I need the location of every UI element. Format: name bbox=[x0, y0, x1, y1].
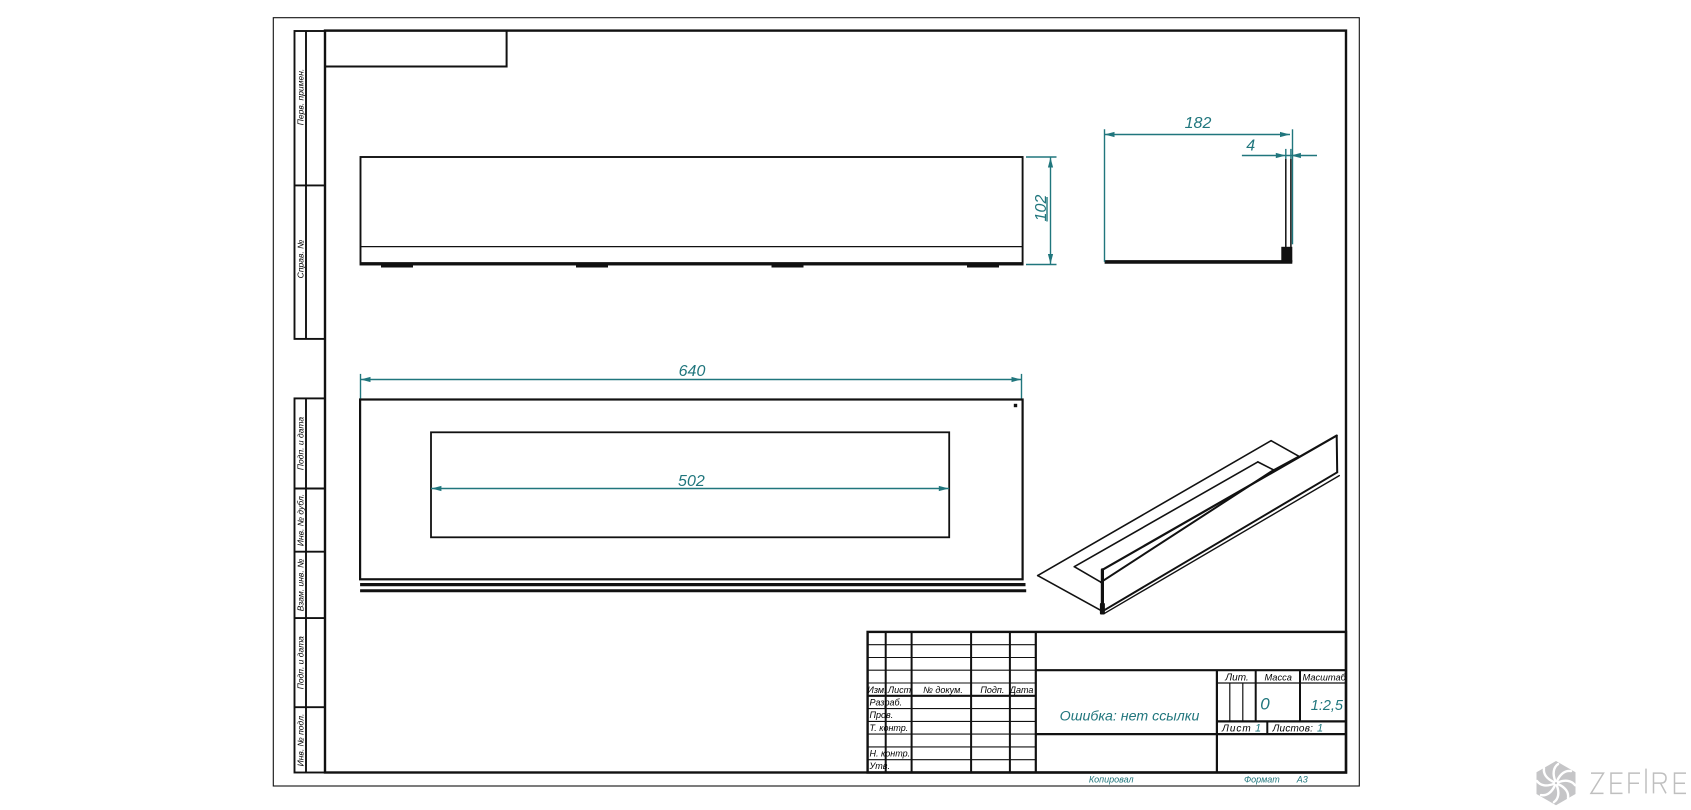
svg-text:4: 4 bbox=[1246, 137, 1255, 154]
svg-text:182: 182 bbox=[1185, 115, 1212, 132]
svg-text:Разраб.: Разраб. bbox=[870, 697, 903, 707]
svg-text:102: 102 bbox=[1033, 195, 1050, 222]
svg-text:1: 1 bbox=[1317, 722, 1323, 734]
svg-text:Инв. № подл.: Инв. № подл. bbox=[296, 714, 306, 767]
svg-text:Изм.: Изм. bbox=[867, 685, 886, 695]
svg-text:Листов:: Листов: bbox=[1272, 723, 1314, 734]
svg-text:Ошибка: нет ссылки: Ошибка: нет ссылки bbox=[1060, 708, 1200, 724]
svg-text:Лист: Лист bbox=[887, 685, 912, 695]
svg-text:Дата: Дата bbox=[1009, 685, 1034, 695]
svg-text:Утв.: Утв. bbox=[869, 761, 890, 771]
svg-text:№ докум.: № докум. bbox=[923, 685, 963, 695]
svg-text:640: 640 bbox=[679, 363, 706, 380]
svg-text:Подп.: Подп. bbox=[980, 685, 1004, 695]
svg-text:Лит.: Лит. bbox=[1224, 673, 1248, 684]
svg-text:Н. контр.: Н. контр. bbox=[870, 748, 911, 758]
svg-text:Копировал: Копировал bbox=[1089, 774, 1134, 784]
svg-text:Лист: Лист bbox=[1221, 723, 1252, 734]
svg-text:Т. контр.: Т. контр. bbox=[870, 723, 909, 733]
svg-text:Перв. примен.: Перв. примен. bbox=[296, 69, 306, 126]
svg-text:Взам. инв. №: Взам. инв. № bbox=[296, 559, 306, 612]
svg-text:Пров.: Пров. bbox=[870, 710, 894, 720]
svg-text:Подп. и дата: Подп. и дата bbox=[296, 636, 306, 689]
svg-text:Подп. и дата: Подп. и дата bbox=[296, 417, 306, 470]
svg-text:1: 1 bbox=[1255, 722, 1261, 734]
svg-text:Масштаб: Масштаб bbox=[1302, 673, 1346, 683]
svg-text:Формат: Формат bbox=[1244, 774, 1280, 784]
svg-text:Масса: Масса bbox=[1264, 673, 1292, 683]
svg-text:Инв. № дубл.: Инв. № дубл. bbox=[296, 494, 306, 546]
svg-text:А3: А3 bbox=[1296, 774, 1308, 784]
svg-text:502: 502 bbox=[678, 473, 705, 490]
svg-text:0: 0 bbox=[1260, 695, 1270, 714]
svg-text:Справ. №: Справ. № bbox=[296, 240, 306, 279]
svg-text:1:2,5: 1:2,5 bbox=[1311, 698, 1344, 714]
